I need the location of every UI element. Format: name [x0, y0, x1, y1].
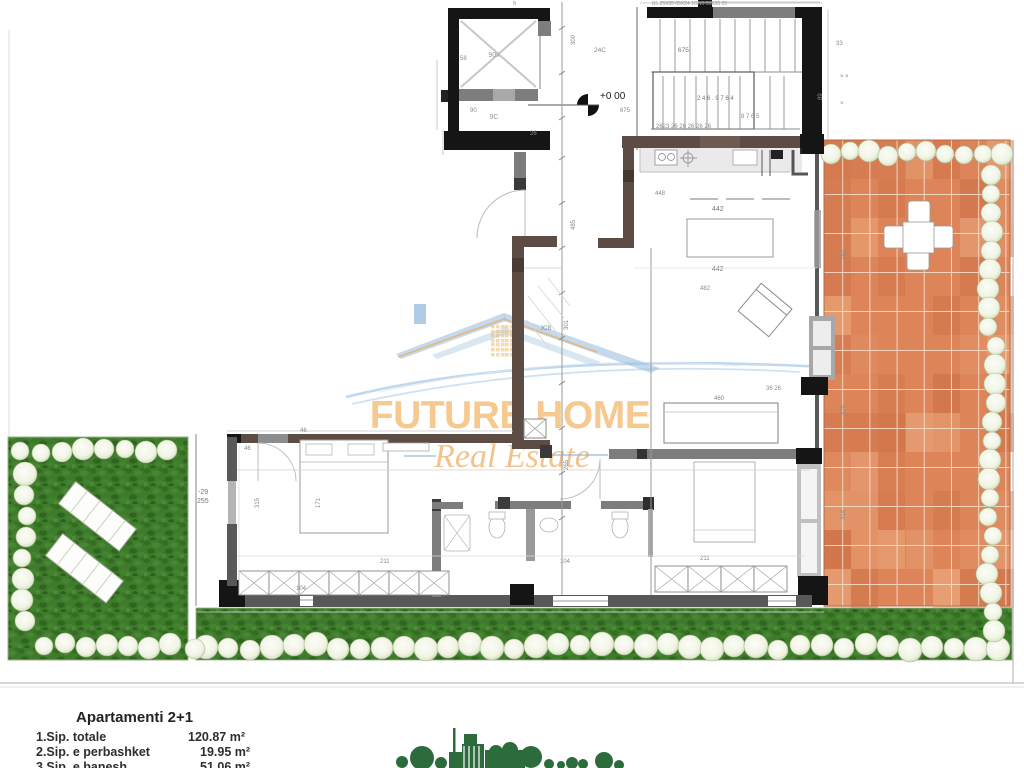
- svg-text:482: 482: [700, 286, 711, 292]
- svg-text:171: 171: [316, 497, 322, 508]
- svg-text:26: 26: [530, 131, 537, 137]
- svg-text:FUTURE HOME: FUTURE HOME: [370, 394, 651, 437]
- svg-text:Apartamenti 2+1: Apartamenti 2+1: [76, 709, 193, 726]
- svg-text:46: 46: [244, 446, 251, 452]
- svg-text:89: 89: [818, 93, 824, 100]
- svg-text:211: 211: [700, 556, 710, 562]
- svg-text:24C: 24C: [594, 47, 606, 54]
- svg-text:470: 470: [841, 404, 847, 415]
- svg-text:×: ×: [840, 101, 844, 107]
- svg-text:90x: 90x: [488, 52, 500, 59]
- svg-text:675: 675: [620, 108, 631, 114]
- svg-text:2623 26 26 26 26 26: 2623 26 26 26 26 26: [656, 124, 712, 130]
- svg-text:+0 00: +0 00: [600, 91, 626, 102]
- svg-text:675: 675: [678, 47, 689, 54]
- svg-text:485: 485: [571, 219, 577, 230]
- svg-text:240: 240: [841, 249, 847, 260]
- svg-text:51.06 m²: 51.06 m²: [200, 760, 250, 768]
- svg-text:2.Sip. e perbashket: 2.Sip. e perbashket: [36, 745, 151, 759]
- svg-text:442: 442: [712, 266, 724, 273]
- svg-text:460: 460: [714, 396, 725, 402]
- svg-text:46: 46: [300, 428, 307, 434]
- svg-text:300: 300: [571, 34, 577, 45]
- svg-text:442: 442: [712, 206, 724, 213]
- svg-text:-29: -29: [198, 489, 208, 496]
- svg-text:315: 315: [255, 497, 261, 508]
- svg-text:8 7 6 5: 8 7 6 5: [741, 114, 760, 120]
- svg-text:104: 104: [296, 586, 307, 592]
- svg-text:1.Sip. totale: 1.Sip. totale: [36, 730, 106, 744]
- svg-text:255: 255: [197, 498, 209, 505]
- svg-text:33: 33: [836, 41, 843, 47]
- svg-text:19.95 m²: 19.95 m²: [200, 745, 250, 759]
- svg-text:B5 25X95 05X24 1GN5 50X35 25: B5 25X95 05X24 1GN5 50X35 25: [652, 1, 727, 7]
- svg-text:58: 58: [460, 56, 467, 62]
- svg-text:301: 301: [564, 319, 570, 330]
- svg-text:JCB: JCB: [540, 326, 551, 332]
- svg-text:104: 104: [560, 559, 571, 565]
- svg-text:211: 211: [380, 559, 390, 565]
- svg-text:448: 448: [655, 191, 666, 197]
- svg-text:B: B: [513, 1, 517, 7]
- svg-text:120.87 m²: 120.87 m²: [188, 730, 245, 744]
- svg-text:3.Sip. e banesh: 3.Sip. e banesh: [36, 760, 127, 768]
- svg-text:2 4 6 . 9 7 6 4: 2 4 6 . 9 7 6 4: [697, 96, 734, 102]
- svg-text:× ×: × ×: [840, 74, 849, 80]
- svg-text:36 26: 36 26: [766, 386, 782, 392]
- svg-text:9C: 9C: [490, 114, 499, 121]
- svg-text:318: 318: [841, 509, 847, 520]
- svg-text:90: 90: [470, 108, 477, 114]
- svg-text:265: 265: [564, 459, 570, 470]
